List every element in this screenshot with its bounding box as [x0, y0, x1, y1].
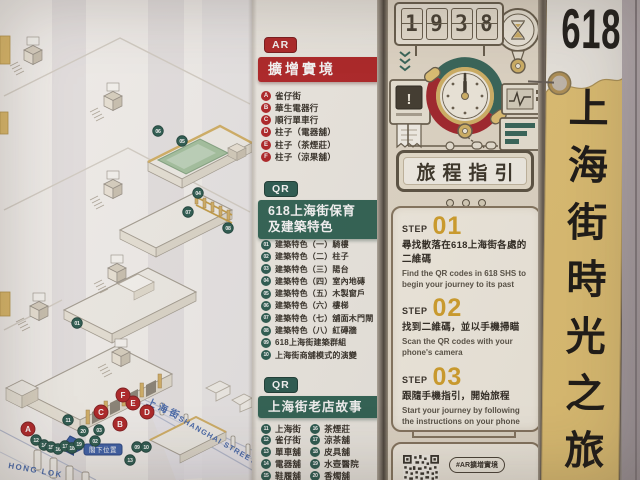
svg-text:13: 13: [127, 458, 133, 464]
clock-illustration: [423, 62, 509, 148]
qr-features-list: 01 建築特色（一）騎樓 02 建築特色（二）柱子 03 建築特色（三）陽台 0…: [261, 240, 373, 363]
legend-label: 香燭舖: [324, 470, 350, 480]
qr-shops-right-column: 16 茶煙莊 17 涼茶舖 18 皮具舖 19: [310, 424, 359, 480]
legend-item: 19 水壺醫院: [310, 459, 359, 468]
svg-text:07: 07: [185, 210, 191, 216]
legend-item: 16 茶煙莊: [310, 424, 359, 433]
step-word: STEP: [402, 224, 428, 237]
legend-label: 建築特色（二）柱子: [275, 251, 349, 262]
legend-label: 建築特色（三）陽台: [275, 264, 349, 275]
step-number: 02: [433, 298, 463, 319]
legend-label: 茶煙莊: [324, 423, 350, 435]
legend-label: 雀仔街: [275, 434, 301, 446]
step-header: STEP 01: [402, 216, 530, 237]
flip-digit-bottom: 3: [452, 24, 472, 39]
legend-item: E 柱子（茶煙莊）: [261, 140, 336, 149]
legend-label: 水壺醫院: [324, 458, 359, 470]
legend-label: 建築特色（五）木製窗戶: [275, 288, 365, 299]
legend-item: 04 建築特色（四）室內地磚: [261, 277, 373, 286]
legend-label: 順行單車行: [275, 114, 319, 126]
step-header: STEP 02: [402, 298, 530, 319]
step-block: STEP 03 跟隨手機指引，開始旅程 Start your journey b…: [402, 367, 530, 427]
legend-label: 皮具舖: [324, 446, 350, 458]
legend-label: 建築特色（四）室內地磚: [275, 276, 365, 287]
svg-text:!: !: [407, 91, 412, 108]
legend-item: 06 建築特色（六）樓梯: [261, 301, 373, 310]
legend-item: 12 雀仔街: [261, 436, 301, 445]
ar-heading-banner: 擴增實境: [258, 57, 380, 82]
qr-pin-key: 03: [261, 264, 271, 274]
journey-guide-title-frame: 旅程指引: [396, 150, 534, 192]
flip-digit-top: 2: [452, 9, 472, 24]
tag-number: 618: [561, 1, 610, 58]
flip-digit-bottom: 9: [427, 24, 447, 39]
flip-digit-cell: 2 3: [451, 8, 473, 40]
ar-pin-key: B: [261, 103, 271, 113]
qr-pin-key: 16: [310, 424, 320, 434]
qr-pin-key: 10: [261, 350, 271, 360]
svg-text:D: D: [144, 408, 150, 417]
legend-item: 15 鞋履舖: [261, 471, 301, 480]
qr-code: [403, 455, 439, 480]
ar-legend-list: A 雀仔街 B 華生電器行 C 順行單車行 D 柱子（電器舖）: [261, 91, 336, 165]
flip-digit-top: 8: [477, 9, 497, 24]
legend-item: 09 618上海街建築群組: [261, 338, 373, 347]
qr-pin-key: 11: [261, 424, 271, 434]
legend-item: 02 建築特色（二）柱子: [261, 252, 373, 261]
guide-panel: !: [388, 0, 544, 480]
legend-item: 14 電器舖: [261, 459, 301, 468]
qr-shops-badge: QR: [264, 377, 298, 393]
legend-item: D 柱子（電器舖）: [261, 128, 336, 137]
qr-pin-key: 19: [310, 459, 320, 469]
svg-text:06: 06: [155, 129, 161, 135]
legend-label: 上海街商舖模式的演變: [275, 350, 357, 361]
step-number: 03: [433, 367, 463, 388]
svg-text:B: B: [117, 420, 123, 429]
qr-shops-list: 11 上海街 12 雀仔街 13 單車舖 14: [261, 424, 359, 480]
legend-panel: AR 擴增實境 A 雀仔街 B 華生電器行 C 順行單車行: [252, 0, 378, 480]
flip-digit-cell: 8 0: [476, 8, 498, 40]
flip-digit-bottom: 0: [477, 24, 497, 39]
svg-text:A: A: [25, 425, 31, 434]
legend-item: 03 建築特色（三）陽台: [261, 265, 373, 274]
legend-label: 柱子（涼果舖）: [275, 151, 336, 163]
qr-pin-key: 15: [261, 471, 271, 480]
legend-label: 柱子（茶煙莊）: [275, 139, 336, 151]
svg-text:E: E: [130, 399, 136, 408]
flip-digit-top: 9: [427, 9, 447, 24]
legend-item: 10 上海街商舖模式的演變: [261, 351, 373, 360]
svg-text:20: 20: [80, 429, 86, 435]
qr-pin-key: 05: [261, 289, 271, 299]
legend-label: 鞋履舖: [275, 470, 301, 480]
qr-pin-key: 17: [310, 435, 320, 445]
wall-seam: [635, 0, 637, 480]
qr-shops-heading-banner: 上海街老店故事: [258, 396, 380, 418]
step-header: STEP 03: [402, 367, 530, 388]
legend-label: 雀仔街: [275, 90, 301, 102]
qr-features-heading-line1: 618上海街保育: [268, 203, 380, 219]
legend-item: 07 建築特色（七）舖面木門閘: [261, 314, 373, 323]
poster-photo: 上海街 SHANGHAI STREET HONG LOK 閣下位置 ABCDEF…: [0, 0, 640, 480]
map-panel: 上海街 SHANGHAI STREET HONG LOK 閣下位置 ABCDEF…: [0, 0, 252, 480]
ar-hashtag-pill: #AR擴增實境: [449, 457, 505, 473]
qr-features-heading-line2: 及建築特色: [268, 219, 380, 235]
flip-counter: 1 1 9 9 2 3 8 0: [394, 2, 504, 46]
ar-pin-key: C: [261, 115, 271, 125]
tag-title-vertical: 上海街時光之旅: [551, 87, 614, 480]
qr-pin-key: 20: [310, 471, 320, 480]
svg-text:05: 05: [179, 139, 185, 145]
qr-shops-left-column: 11 上海街 12 雀仔街 13 單車舖 14: [261, 424, 301, 480]
flip-digit-bottom: 1: [402, 24, 422, 39]
legend-item: C 順行單車行: [261, 116, 336, 125]
legend-item: 11 上海街: [261, 424, 301, 433]
poster-crease: [248, 0, 257, 480]
printer-icon: !: [390, 80, 430, 147]
qr-pin-key: 18: [310, 447, 320, 457]
svg-text:08: 08: [225, 226, 231, 232]
svg-text:01: 01: [74, 321, 80, 327]
legend-label: 涼茶舖: [324, 434, 350, 446]
qr-pin-key: 12: [261, 435, 271, 445]
steps-panel: STEP 01 尋找散落在618上海街各處的二維碼 Find the QR co…: [391, 206, 541, 432]
step-text-en: Find the QR codes in 618 SHS to begin yo…: [402, 268, 530, 290]
legend-item: 08 建築特色（八）紅磚牆: [261, 326, 373, 335]
legend-label: 電器舖: [275, 458, 301, 470]
qr-pin-key: 04: [261, 276, 271, 286]
svg-text:C: C: [98, 408, 104, 417]
qr-pin-key: 02: [261, 252, 271, 262]
board-gap: [377, 0, 388, 480]
legend-label: 建築特色（一）騎樓: [275, 239, 349, 250]
legend-item: 17 涼茶舖: [310, 436, 359, 445]
wall-background: [622, 0, 640, 480]
qr-pin-key: 08: [261, 326, 271, 336]
legend-label: 上海街: [275, 423, 301, 435]
legend-label: 柱子（電器舖）: [275, 126, 336, 138]
qr-pin-key: 09: [261, 338, 271, 348]
qr-pin-key: 06: [261, 301, 271, 311]
step-block: STEP 01 尋找散落在618上海街各處的二維碼 Find the QR co…: [402, 216, 530, 290]
ar-pin-key: F: [261, 152, 271, 162]
flip-digit-cell: 9 9: [426, 8, 448, 40]
qr-features-badge: QR: [264, 181, 298, 197]
svg-text:19: 19: [76, 442, 82, 448]
ar-pin-key: D: [261, 127, 271, 137]
step-block: STEP 02 找到二維碼，並以手機掃瞄 Scan the QR codes w…: [402, 298, 530, 358]
svg-text:09: 09: [134, 445, 140, 451]
ar-badge: AR: [264, 37, 297, 53]
legend-item: 05 建築特色（五）木製窗戶: [261, 289, 373, 298]
qr-pin-key: 07: [261, 313, 271, 323]
flip-digit-cell: 1 1: [401, 8, 423, 40]
qr-panel: #AR擴增實境: [391, 442, 541, 480]
svg-text:12: 12: [33, 438, 39, 444]
legend-label: 618上海街建築群組: [275, 337, 346, 348]
qr-pin-key: 13: [261, 447, 271, 457]
flip-digit-top: 1: [402, 9, 422, 24]
step-text-zh: 跟隨手機指引，開始旅程: [402, 390, 530, 404]
step-word: STEP: [402, 375, 428, 388]
qr-pin-key: 01: [261, 240, 271, 250]
legend-item: 18 皮具舖: [310, 448, 359, 457]
legend-item: 13 單車舖: [261, 448, 301, 457]
legend-label: 建築特色（七）舖面木門閘: [275, 313, 373, 324]
legend-item: 01 建築特色（一）騎樓: [261, 240, 373, 249]
svg-text:10: 10: [143, 445, 149, 451]
legend-label: 單車舖: [275, 446, 301, 458]
tv-screen: 旅程指引: [403, 157, 527, 185]
step-text-en: Start your journey by following the inst…: [402, 405, 530, 427]
legend-item: F 柱子（涼果舖）: [261, 152, 336, 161]
svg-text:02: 02: [92, 439, 98, 445]
svg-text:F: F: [121, 391, 126, 400]
legend-label: 建築特色（六）樓梯: [275, 300, 349, 311]
svg-text:11: 11: [65, 418, 70, 424]
title-tag: 618 上海街時光之旅: [540, 0, 626, 480]
step-number: 01: [433, 216, 463, 237]
ar-pin-key: A: [261, 91, 271, 101]
step-word: STEP: [402, 306, 428, 319]
legend-item: A 雀仔街: [261, 91, 336, 100]
step-text-en: Scan the QR codes with your phone's came…: [402, 336, 530, 358]
step-text-zh: 找到二維碼，並以手機掃瞄: [402, 321, 530, 335]
ar-pin-key: E: [261, 140, 271, 150]
svg-text:03: 03: [96, 428, 102, 434]
panel-connector: [412, 431, 516, 438]
svg-text:04: 04: [195, 191, 201, 197]
legend-label: 華生電器行: [275, 102, 319, 114]
legend-label: 建築特色（八）紅磚牆: [275, 325, 357, 336]
isometric-map: 上海街 SHANGHAI STREET HONG LOK 閣下位置 ABCDEF…: [0, 0, 252, 480]
journey-guide-title: 旅程指引: [409, 158, 520, 185]
legend-item: 20 香燭舖: [310, 471, 359, 480]
step-text-zh: 尋找散落在618上海街各處的二維碼: [402, 239, 530, 267]
legend-item: B 華生電器行: [261, 103, 336, 112]
qr-features-heading-banner: 618上海街保育 及建築特色: [258, 200, 380, 239]
qr-pin-key: 14: [261, 459, 271, 469]
